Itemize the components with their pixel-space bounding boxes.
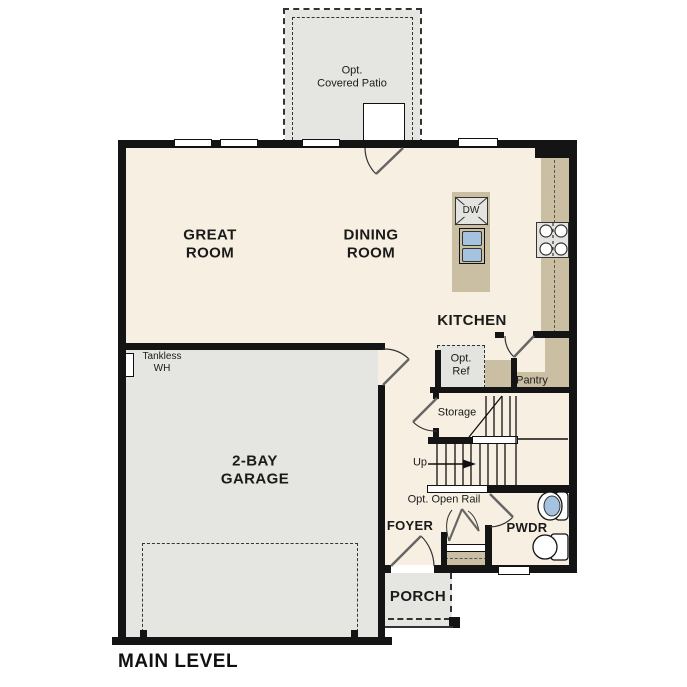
dishwasher-label: DW bbox=[461, 205, 482, 217]
powder-label: PWDR bbox=[507, 520, 548, 536]
main-level-title: MAIN LEVEL bbox=[118, 651, 238, 673]
toilet-icon bbox=[538, 492, 568, 520]
stairs-up-arrow bbox=[428, 460, 476, 469]
dining-room-label: DINING ROOM bbox=[344, 227, 399, 264]
garage-entry-door bbox=[383, 349, 409, 385]
patio-label: Opt. Covered Patio bbox=[317, 65, 387, 92]
open-rail-label: Opt. Open Rail bbox=[408, 493, 481, 506]
front-door bbox=[391, 536, 434, 566]
closet-doors bbox=[447, 509, 479, 541]
tankless-wh-label: Tankless WH bbox=[143, 351, 182, 375]
storage-door bbox=[413, 398, 437, 431]
patio-door bbox=[365, 148, 403, 174]
garage-label: 2-BAY GARAGE bbox=[221, 453, 289, 490]
powder-sink-icon bbox=[533, 534, 568, 560]
opt-ref-label: Opt. Ref bbox=[451, 353, 472, 380]
storage-label: Storage bbox=[438, 406, 477, 419]
pantry-label: Pantry bbox=[516, 374, 548, 387]
pantry-door bbox=[505, 336, 534, 357]
foyer-label: FOYER bbox=[387, 518, 433, 534]
porch-label: PORCH bbox=[390, 588, 446, 606]
kitchen-label: KITCHEN bbox=[437, 312, 506, 330]
plan-linework bbox=[0, 0, 687, 687]
cooktop-burners bbox=[540, 223, 567, 257]
stairs-up-label: Up bbox=[413, 456, 427, 469]
floor-plan: Opt. Covered Patio GREAT ROOM DINING ROO… bbox=[0, 0, 687, 687]
great-room-label: GREAT ROOM bbox=[183, 227, 236, 264]
